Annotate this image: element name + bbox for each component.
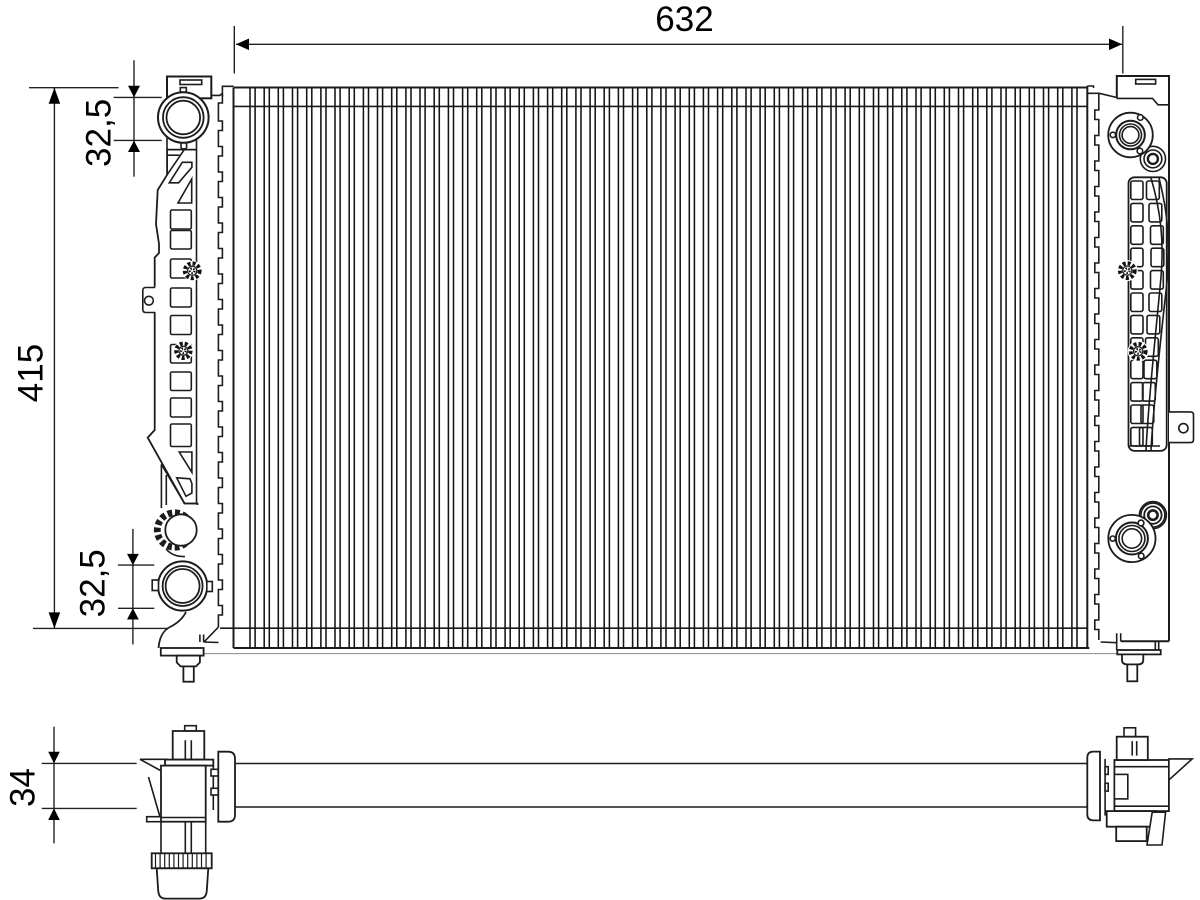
svg-text:32,5: 32,5 [74,549,113,617]
svg-text:32,5: 32,5 [80,99,119,167]
svg-text:34: 34 [4,768,43,807]
svg-text:632: 632 [655,0,713,39]
svg-text:415: 415 [12,344,51,402]
